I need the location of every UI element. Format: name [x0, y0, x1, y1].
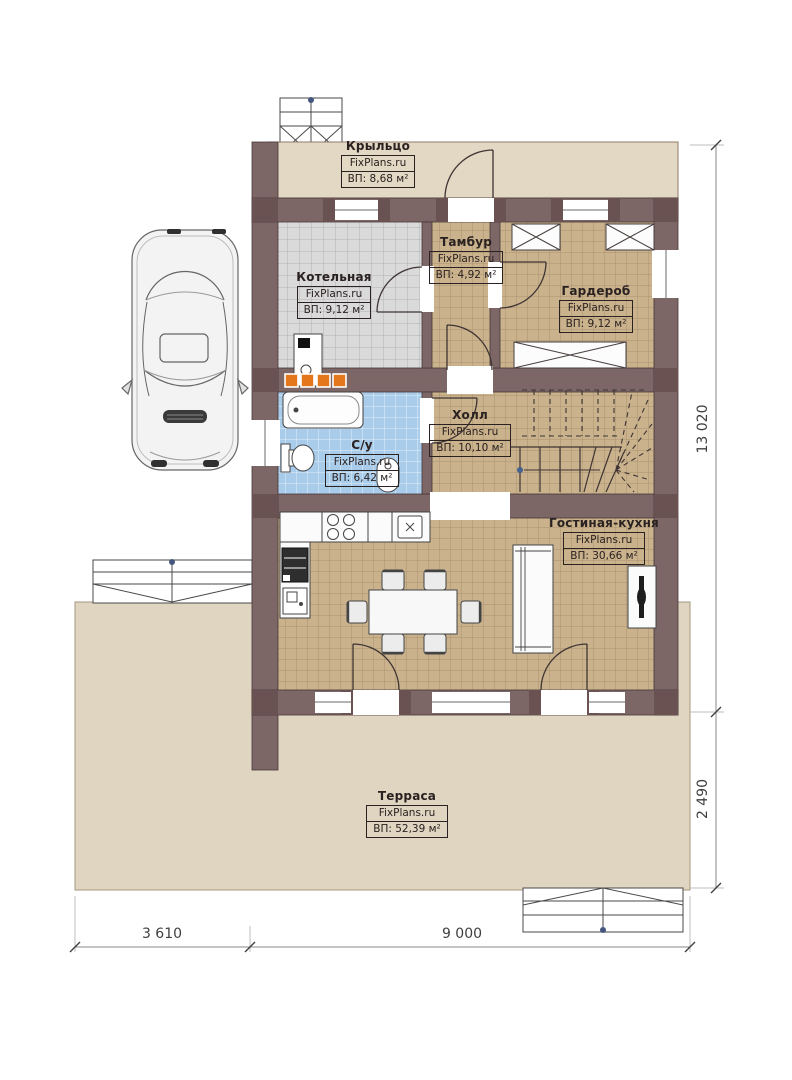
garden-steps: [523, 888, 683, 933]
room-info-box: FixPlans.ru ВП: 9,12 м²: [297, 286, 372, 319]
room-brand: FixPlans.ru: [298, 287, 371, 302]
room-area: ВП: 8,68 м²: [342, 171, 415, 187]
dimension-terrace-width: 3 610: [117, 926, 207, 942]
room-info-box: FixPlans.ru ВП: 4,92 м²: [429, 251, 504, 284]
room-brand: FixPlans.ru: [430, 425, 510, 440]
room-name: Гардероб: [531, 284, 661, 298]
kitchen-appliance: [283, 588, 307, 614]
room-label-boiler: Котельная FixPlans.ru ВП: 9,12 м²: [269, 270, 399, 319]
room-area: ВП: 30,66 м²: [564, 548, 644, 564]
bathtub: [283, 392, 363, 428]
fridge: [282, 548, 308, 582]
room-name: Гостиная-кухня: [539, 516, 669, 530]
room-brand: FixPlans.ru: [367, 806, 447, 821]
room-label-terrace: Терраса FixPlans.ru ВП: 52,39 м²: [342, 789, 472, 838]
room-brand: FixPlans.ru: [342, 156, 415, 171]
room-name: Холл: [405, 408, 535, 422]
dimension-terrace-depth: 2 490: [695, 754, 711, 844]
room-area: ВП: 6,42 м²: [326, 470, 399, 486]
room-brand: FixPlans.ru: [560, 301, 633, 316]
tv-cabinet: [628, 566, 656, 628]
room-label-bathroom: С/у FixPlans.ru ВП: 6,42 м²: [297, 438, 427, 487]
room-area: ВП: 9,12 м²: [560, 316, 633, 332]
dimension-height-total: 13 020: [695, 384, 711, 474]
room-area: ВП: 4,92 м²: [430, 267, 503, 283]
room-area: ВП: 10,10 м²: [430, 440, 510, 456]
room-label-wardrobe: Гардероб FixPlans.ru ВП: 9,12 м²: [531, 284, 661, 333]
terrace-steps: [93, 559, 252, 603]
room-area: ВП: 9,12 м²: [298, 302, 371, 318]
room-label-porch: Крыльцо FixPlans.ru ВП: 8,68 м²: [313, 139, 443, 188]
room-name: Тамбур: [401, 235, 531, 249]
room-info-box: FixPlans.ru ВП: 9,12 м²: [559, 300, 634, 333]
room-info-box: FixPlans.ru ВП: 30,66 м²: [563, 532, 645, 565]
room-info-box: FixPlans.ru ВП: 10,10 м²: [429, 424, 511, 457]
room-name: С/у: [297, 438, 427, 452]
room-name: Крыльцо: [313, 139, 443, 153]
room-brand: FixPlans.ru: [430, 252, 503, 267]
room-label-living-kitchen: Гостиная-кухня FixPlans.ru ВП: 30,66 м²: [539, 516, 669, 565]
floor-plan-page: Крыльцо FixPlans.ru ВП: 8,68 м² Котельна…: [0, 0, 792, 1080]
room-brand: FixPlans.ru: [326, 455, 399, 470]
room-info-box: FixPlans.ru ВП: 52,39 м²: [366, 805, 448, 838]
room-name: Терраса: [342, 789, 472, 803]
room-info-box: FixPlans.ru ВП: 6,42 м²: [325, 454, 400, 487]
room-info-box: FixPlans.ru ВП: 8,68 м²: [341, 155, 416, 188]
room-label-vestibule: Тамбур FixPlans.ru ВП: 4,92 м²: [401, 235, 531, 284]
kitchen-sink: [398, 516, 422, 538]
room-brand: FixPlans.ru: [564, 533, 644, 548]
room-area: ВП: 52,39 м²: [367, 821, 447, 837]
room-name: Котельная: [269, 270, 399, 284]
car-top-view: [122, 229, 248, 470]
dimension-house-width: 9 000: [417, 926, 507, 942]
